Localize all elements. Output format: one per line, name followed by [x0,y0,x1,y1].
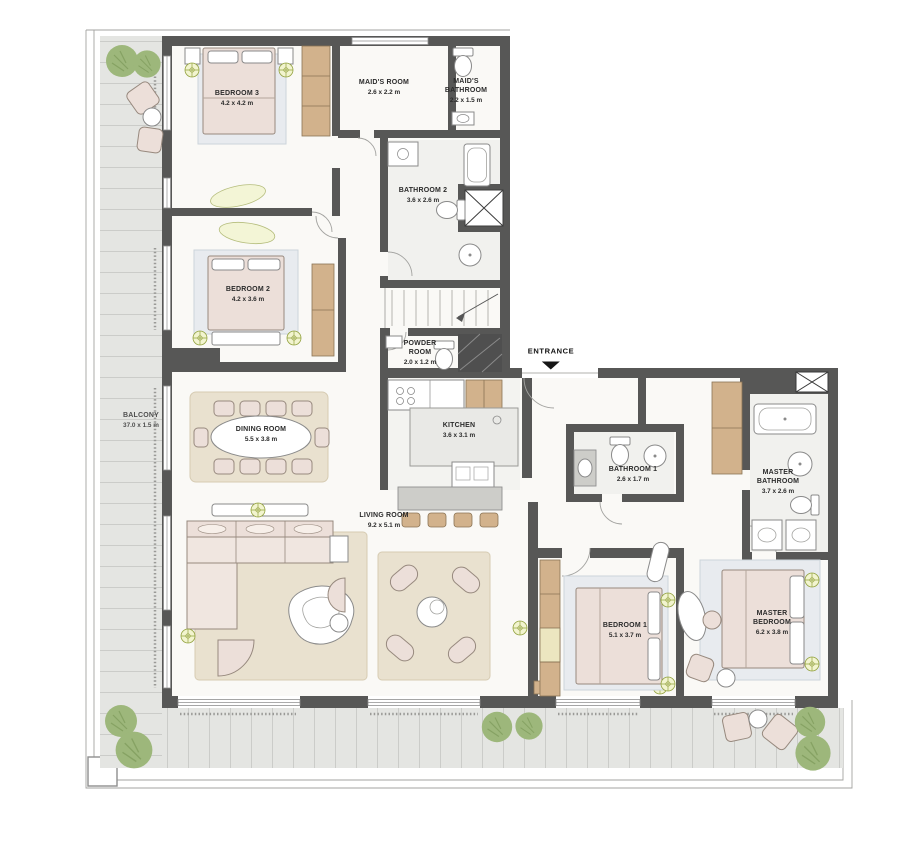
floorplan: BEDROOM 3 4.2 x 4.2 m MAID'S ROOM 2.6 x … [0,0,900,844]
floorplan-canvas [0,0,900,844]
dining-room-furniture [190,392,329,482]
entrance-arrow-icon [542,362,560,370]
entrance-label: ENTRANCE [528,341,574,370]
bedroom-2-furniture [193,250,334,356]
service-shafts [458,184,828,392]
